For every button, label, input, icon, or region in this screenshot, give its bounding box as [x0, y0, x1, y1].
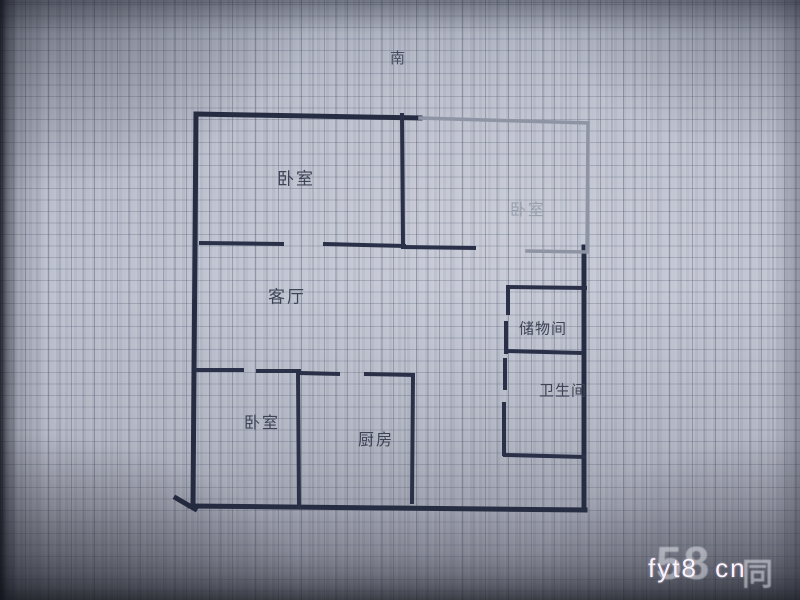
wall-bedroom-tr-south-dark — [403, 247, 474, 248]
room-label-bedroom-top-right: 卧室 — [510, 196, 546, 220]
faint-bedroom-walls — [420, 118, 588, 252]
watermark-site-text: fyt8 cn — [648, 553, 747, 584]
compass-south-label: 南 — [390, 47, 406, 68]
room-label-bedroom-top-left: 卧室 — [277, 165, 315, 190]
wall-bedroom-tl-south-b — [325, 244, 404, 246]
wall-storage-bottom — [506, 351, 581, 353]
wall-kitchen-top-b — [366, 374, 413, 375]
wall-bedroom-tl-south-a — [201, 243, 282, 244]
wall-outer-bottom — [190, 506, 585, 510]
room-label-kitchen: 厨房 — [358, 426, 394, 450]
wall-kitchen-top-a — [300, 373, 338, 374]
wall-kitchen-right — [412, 375, 413, 502]
wall-outer-left — [193, 114, 196, 505]
wall-bathroom-bottom — [505, 455, 584, 457]
wall-outer-top-left — [196, 114, 420, 118]
wall-bedroom-bl-right — [298, 371, 299, 507]
floor-plan-drawing — [0, 0, 800, 600]
wall-bedrooms-divider — [402, 115, 403, 246]
room-label-storage-room: 储物间 — [519, 318, 567, 339]
outer-walls — [176, 114, 585, 510]
wall-bedroom-right-bottom-faint — [527, 251, 587, 252]
watermark-tongcheng-logo: 同城 — [742, 549, 800, 600]
wall-storage-top — [508, 287, 585, 288]
watermark: 58 同城 fyt8 cn — [618, 540, 800, 598]
wall-outer-right-upper-faint — [587, 123, 588, 251]
room-label-bedroom-bottom-left: 卧室 — [244, 409, 280, 433]
floor-plan-photo: 南 卧室 卧室 客厅 储物间 卫生间 卧室 厨房 58 同城 fyt8 cn — [0, 0, 800, 600]
room-label-bathroom: 卫生间 — [539, 380, 587, 401]
wall-outer-top-right-faint — [420, 118, 588, 123]
room-label-living-room: 客厅 — [268, 283, 306, 308]
